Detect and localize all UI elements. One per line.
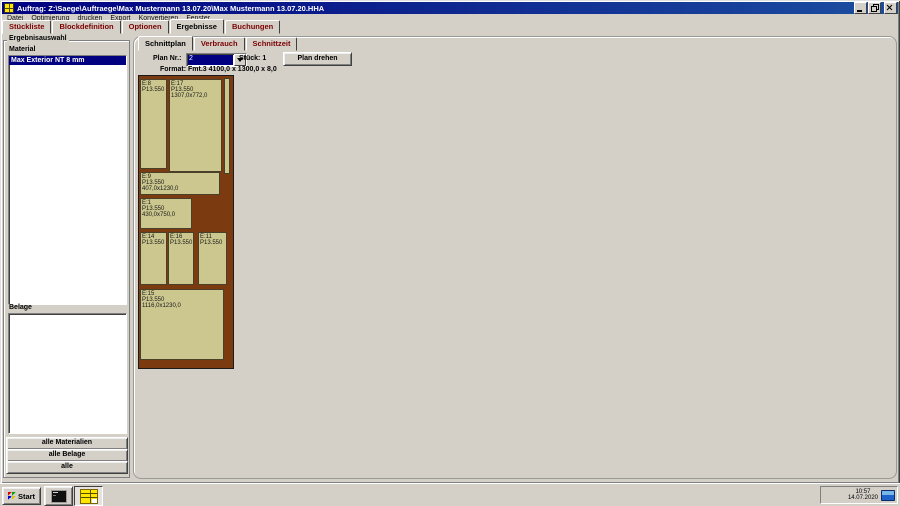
ergebnisauswahl-label: Ergebnisauswahl (7, 35, 69, 42)
plan-piece: E:11 P13.550 (198, 232, 227, 285)
system-tray: 10:57 14.07.2020 (820, 486, 898, 504)
plan-piece: E:1 P13.550 430,0x750,0 (140, 198, 192, 229)
belage-list[interactable] (8, 313, 127, 434)
tab-verbrauch[interactable]: Verbrauch (194, 37, 245, 51)
start-button[interactable]: Start (2, 487, 41, 505)
taskbar-item-console[interactable] (44, 486, 73, 506)
cutting-plan-board: E:8 P13.550 E:17 P13.550 1307,0x772,0 E:… (138, 75, 234, 369)
cutting-plan-icon (80, 489, 98, 504)
tab-stueckliste[interactable]: Stückliste (2, 20, 51, 34)
window-title: Auftrag: Z:\Saege\Auftraege\Max Musterma… (17, 4, 853, 13)
taskbar-clock[interactable]: 10:57 14.07.2020 (848, 489, 878, 502)
format-text: Format: Fmt.3 4100,0 x 1300,0 x 8,0 (160, 66, 277, 73)
results-panel (133, 36, 897, 479)
main-tab-bar: Stückliste Blockdefinition Optionen Erge… (2, 21, 281, 34)
windows-logo-icon (8, 492, 16, 500)
plan-piece: E:17 P13.550 1307,0x772,0 (169, 79, 222, 172)
close-button[interactable] (884, 2, 897, 14)
plan-piece: E:9 P13.550 407,0x1230,0 (140, 172, 220, 195)
tab-blockdefinition[interactable]: Blockdefinition (52, 20, 120, 34)
plan-piece: E:14 P13.550 (140, 232, 167, 285)
plan-nr-label: Plan Nr.: (153, 55, 181, 62)
app-window: Auftrag: Z:\Saege\Auftraege\Max Musterma… (0, 0, 900, 484)
titlebar[interactable]: Auftrag: Z:\Saege\Auftraege\Max Musterma… (2, 2, 898, 14)
tab-ergebnisse[interactable]: Ergebnisse (170, 19, 224, 34)
desktop: Auftrag: Z:\Saege\Auftraege\Max Musterma… (0, 0, 900, 506)
plan-piece: E:8 P13.550 (140, 79, 167, 169)
restore-button[interactable] (868, 2, 881, 14)
tab-buchungen[interactable]: Buchungen (225, 20, 280, 34)
tab-schnittplan[interactable]: Schnittplan (138, 36, 193, 51)
tab-optionen[interactable]: Optionen (122, 20, 169, 34)
taskbar: Start 10:57 14.07.2020 (0, 483, 900, 506)
plan-piece: E:16 P13.550 (168, 232, 194, 285)
belage-label: Belage (9, 304, 32, 311)
plan-drehen-button[interactable]: Plan drehen (283, 52, 352, 66)
console-icon (51, 490, 67, 503)
plan-piece: E:15 P13.550 1116,0x1230,0 (140, 289, 224, 360)
stueck-count: Stück: 1 (239, 55, 266, 62)
material-label: Material (9, 46, 35, 53)
tab-schnittzeit[interactable]: Schnittzeit (246, 37, 298, 51)
plan-nr-value: 2 (188, 55, 233, 65)
material-list-item[interactable]: Max Exterior NT 8 mm (9, 56, 126, 65)
plan-offcut-strip (224, 78, 230, 174)
taskbar-item-cutting-app[interactable] (74, 486, 103, 506)
material-list[interactable]: Max Exterior NT 8 mm (8, 55, 127, 305)
minimize-button[interactable] (854, 2, 867, 14)
network-tray-icon[interactable] (881, 490, 895, 501)
clock-date: 14.07.2020 (848, 495, 878, 502)
results-tab-bar: Schnittplan Verbrauch Schnittzeit (138, 38, 298, 51)
alle-button[interactable]: alle (6, 461, 128, 474)
start-button-label: Start (18, 492, 35, 501)
plan-nr-combobox[interactable]: 2 (186, 53, 247, 67)
app-icon (4, 3, 14, 13)
